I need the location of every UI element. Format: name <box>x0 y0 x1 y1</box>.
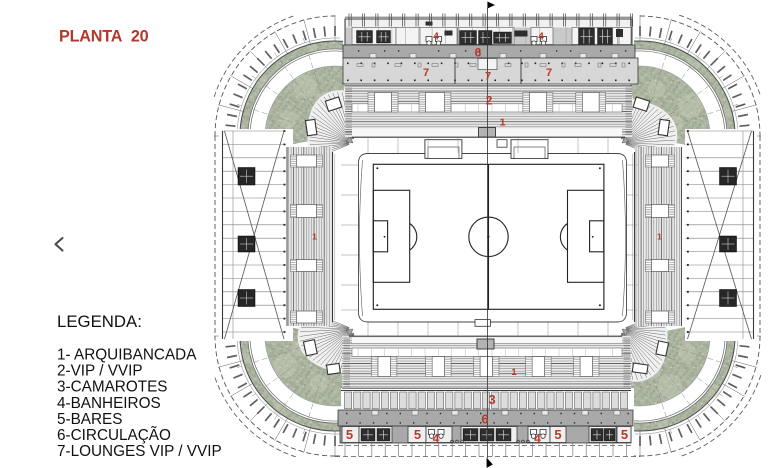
svg-text:3-CAMAROTES: 3-CAMAROTES <box>57 379 168 396</box>
svg-text:6-CIRCULAÇÃO: 6-CIRCULAÇÃO <box>57 427 171 444</box>
svg-text:4: 4 <box>433 32 439 43</box>
svg-text:1: 1 <box>657 232 662 242</box>
svg-text:5: 5 <box>554 427 561 442</box>
svg-text:LEGENDA:: LEGENDA: <box>57 312 142 331</box>
svg-text:5-BARES: 5-BARES <box>57 411 122 428</box>
svg-text:1: 1 <box>312 232 317 242</box>
svg-text:6: 6 <box>475 46 482 60</box>
svg-text:5: 5 <box>346 427 353 442</box>
svg-text:7: 7 <box>423 67 429 79</box>
svg-text:6: 6 <box>481 412 488 427</box>
svg-text:1: 1 <box>500 117 506 129</box>
svg-text:2-VIP / VVIP: 2-VIP / VVIP <box>57 363 143 380</box>
svg-text:1: 1 <box>511 367 517 378</box>
svg-text:1- ARQUIBANCADA: 1- ARQUIBANCADA <box>57 347 197 364</box>
svg-text:3: 3 <box>488 392 495 407</box>
svg-text:4-BANHEIROS: 4-BANHEIROS <box>57 395 161 412</box>
svg-text:7: 7 <box>485 71 491 83</box>
svg-text:PLANTA 20: PLANTA 20 <box>59 28 149 46</box>
svg-text:4: 4 <box>538 32 544 43</box>
svg-text:7: 7 <box>546 67 552 79</box>
svg-text:4: 4 <box>534 432 541 446</box>
svg-text:5: 5 <box>414 427 421 442</box>
svg-text:2: 2 <box>486 94 493 108</box>
svg-text:5: 5 <box>621 427 628 442</box>
svg-text:7-LOUNGES VIP / VVIP: 7-LOUNGES VIP / VVIP <box>57 443 222 460</box>
svg-text:4: 4 <box>433 432 440 446</box>
